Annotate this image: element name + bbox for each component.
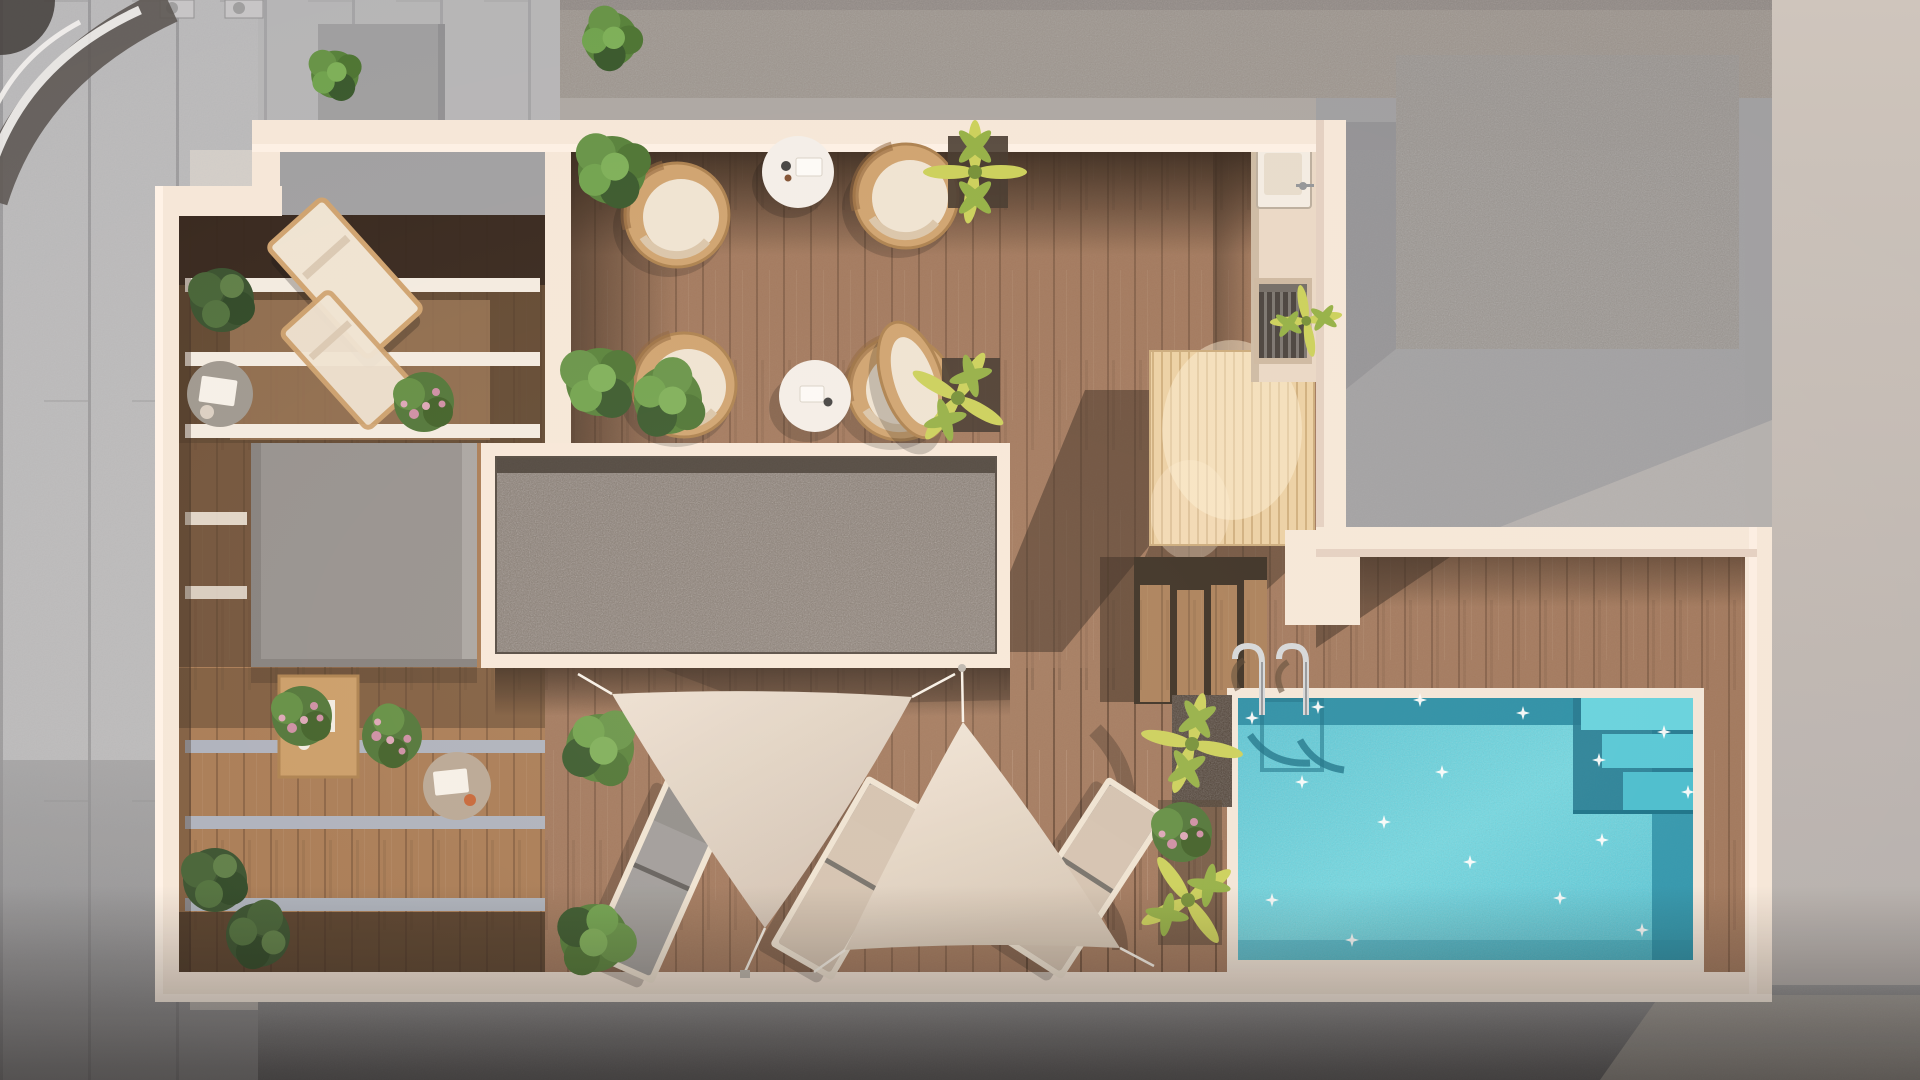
neighbor-right-strip	[1772, 0, 1920, 1080]
pool-steps	[1573, 698, 1693, 814]
side-table-taupe	[423, 752, 491, 820]
swimming-pool	[1227, 646, 1704, 972]
rooftop-terrace-rendering	[0, 0, 1920, 1080]
gravel-skylight	[481, 443, 1010, 668]
roof-access-box	[251, 443, 477, 683]
side-table-gray	[187, 361, 253, 427]
deck-stairs	[1100, 557, 1267, 704]
kitchen-sink	[1257, 146, 1314, 208]
